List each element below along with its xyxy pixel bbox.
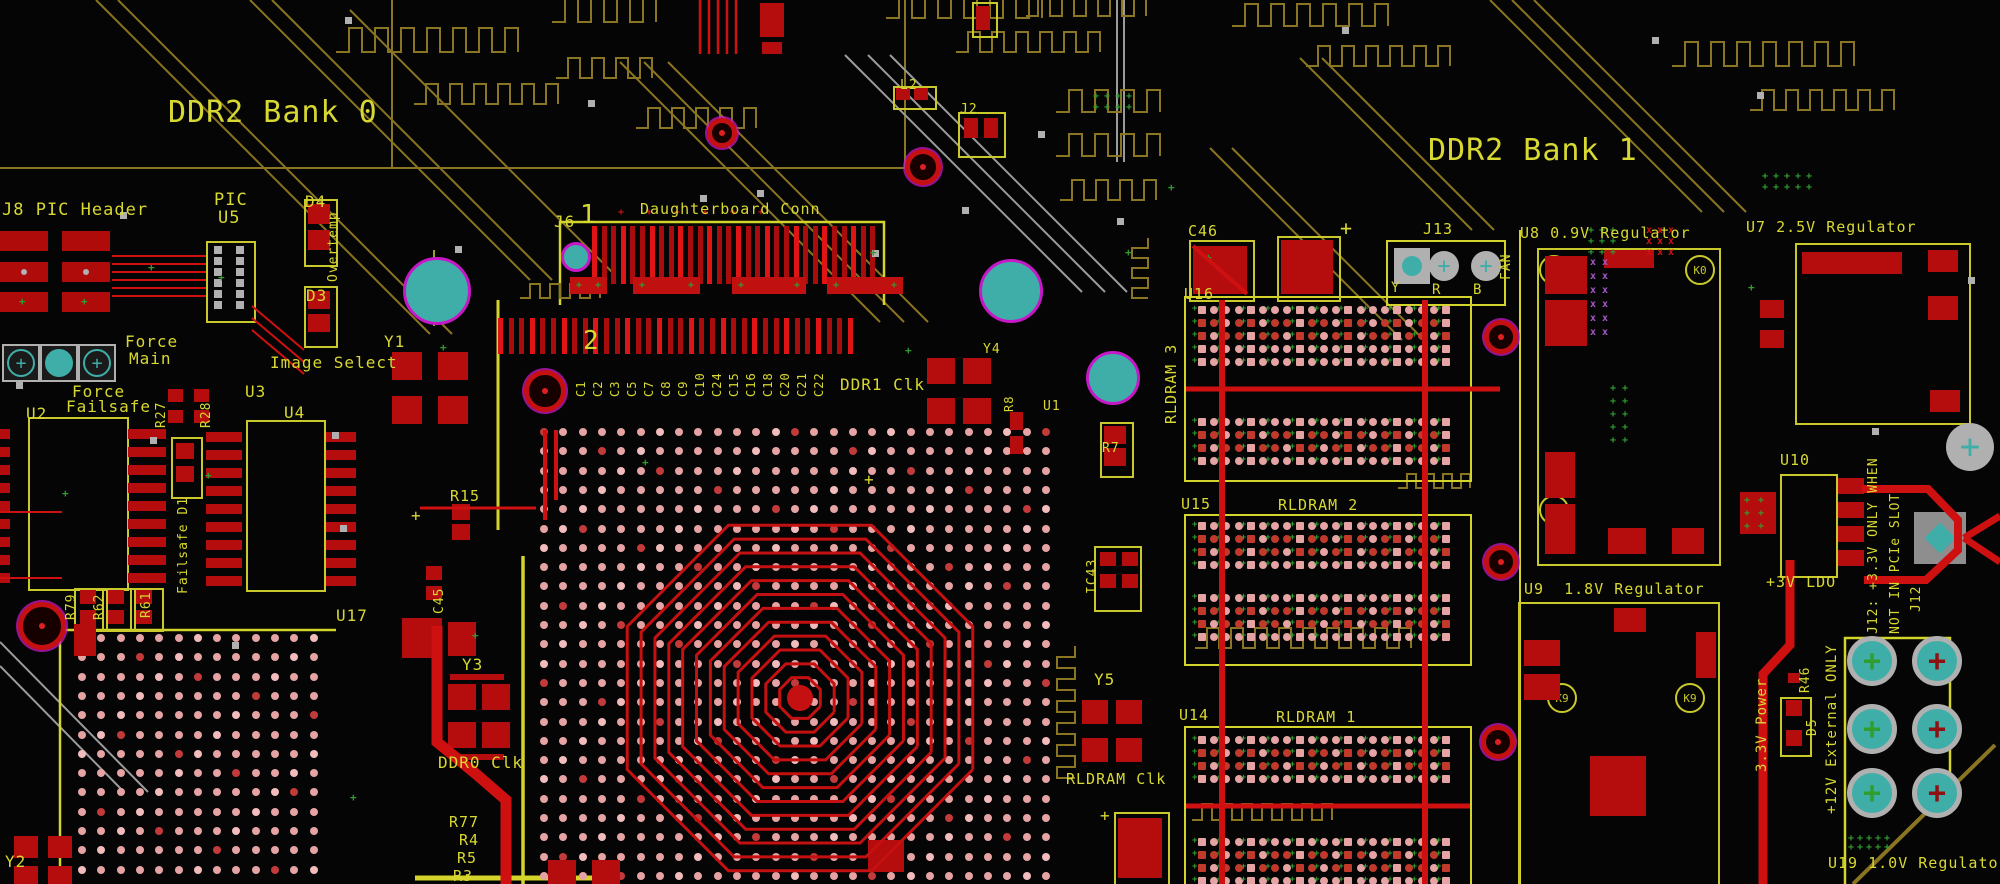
- silk-label: +: [864, 472, 875, 488]
- silk-label: RLDRAM 3: [1164, 344, 1179, 424]
- silk-label: PIC: [214, 192, 248, 209]
- silk-label: J2: [960, 103, 978, 116]
- silk-label-capacitor: C8: [660, 381, 672, 397]
- silk-label: DDR2 Bank 1: [1428, 136, 1638, 166]
- silk-label: Y5: [1094, 672, 1115, 688]
- silk-label: R: [1432, 283, 1441, 297]
- silk-label-capacitor: C7: [643, 381, 655, 397]
- silk-label: +: [1340, 218, 1353, 238]
- silk-label: U5: [218, 210, 240, 227]
- silk-label-capacitor: C15: [728, 372, 740, 397]
- silk-label: Force: [125, 334, 178, 350]
- silk-label: Y4: [983, 343, 1001, 356]
- silk-label: R4: [459, 833, 479, 848]
- silk-label: U19 1.0V Regulator: [1828, 856, 2000, 871]
- silk-label: +: [1100, 808, 1111, 824]
- silk-label-capacitor: C5: [626, 381, 638, 397]
- silk-label: FAN: [1500, 254, 1513, 280]
- silk-label: U7 2.5V Regulator: [1746, 220, 1917, 235]
- silk-label: U14: [1179, 708, 1209, 723]
- silk-label: R27: [155, 402, 168, 428]
- silk-label: R8: [1003, 396, 1015, 412]
- silk-label: B: [1473, 283, 1482, 297]
- silk-label: R62: [93, 594, 106, 620]
- silk-label: DDR2 Bank 0: [168, 98, 378, 128]
- silk-label: D5: [1806, 718, 1819, 736]
- silk-label: RLDRAM 2: [1278, 498, 1358, 513]
- silk-label: J12: [1910, 586, 1923, 612]
- silk-label: RLDRAM Clk: [1066, 772, 1166, 787]
- silk-label: C46: [1188, 224, 1218, 239]
- silk-label-capacitor: C18: [762, 372, 774, 397]
- silk-label: Y3: [462, 657, 483, 673]
- silk-label: C45: [433, 588, 446, 614]
- silk-label: U15: [1181, 497, 1211, 512]
- silk-label: U9 1.8V Regulator: [1524, 582, 1705, 597]
- silk-label: U8 0.9V Regulator: [1520, 226, 1691, 241]
- silk-label: DDR1 Clk: [840, 377, 925, 393]
- silk-label: D3: [306, 288, 327, 304]
- silk-label: 2: [583, 328, 600, 354]
- silk-label-capacitor: C21: [796, 372, 808, 397]
- silk-label: R61: [140, 592, 153, 618]
- silk-label-capacitor: C2: [592, 381, 604, 397]
- silk-label: RLDRAM 1: [1276, 710, 1356, 725]
- silk-label-capacitor: C24: [711, 372, 723, 397]
- silk-label: Daughterboard Conn: [640, 202, 821, 217]
- pcb-canvas[interactable]: ++++++++++++++++++++++++++++++++++++++++…: [0, 0, 2000, 884]
- silk-label: U2: [26, 406, 47, 422]
- silk-label: U16: [1184, 287, 1214, 302]
- silk-label: J8 PIC Header: [2, 202, 148, 219]
- silk-label: R7: [1102, 442, 1120, 455]
- silk-label-capacitor: C22: [813, 372, 825, 397]
- silk-label: Y1: [384, 334, 405, 350]
- silk-label: J12: +3.3V ONLY WHEN: [1867, 457, 1880, 634]
- silk-label-capacitor: C10: [694, 372, 706, 397]
- silk-label: U10: [1780, 453, 1810, 468]
- silk-label: Y2: [5, 854, 26, 870]
- silk-label-capacitor: C20: [779, 372, 791, 397]
- silk-label: Failsafe: [66, 399, 151, 415]
- silk-label: U3: [245, 384, 266, 400]
- silk-label: R15: [450, 489, 480, 504]
- silk-label: R77: [449, 815, 479, 830]
- silk-label: DDR0 Clk: [438, 755, 523, 771]
- silk-label: Overtemp: [327, 211, 340, 282]
- silk-label: Image Select: [270, 355, 398, 371]
- silk-label: Failsafe D1: [177, 497, 190, 594]
- silk-label: +3V LDO: [1766, 575, 1836, 590]
- silk-label: J6: [554, 214, 575, 230]
- silk-label: R46: [1799, 667, 1812, 693]
- silk-label-capacitor: C3: [609, 381, 621, 397]
- silk-label: U17: [336, 608, 368, 624]
- silk-label: J13: [1423, 222, 1453, 237]
- silk-label: Main: [129, 351, 172, 367]
- silk-label: R28: [200, 402, 213, 428]
- silk-label: +12V External ONLY: [1825, 644, 1839, 814]
- silk-label: NOT IN PCIe SLOT: [1889, 493, 1902, 634]
- silk-label: 3.3V Power: [1755, 678, 1769, 772]
- silk-label: L2: [900, 79, 918, 92]
- silk-label: 1: [580, 202, 597, 228]
- silk-label: R3: [453, 869, 473, 884]
- silk-label: R5: [457, 851, 477, 866]
- silk-label: U4: [284, 405, 305, 421]
- silk-label: R79: [65, 594, 78, 620]
- silk-label-capacitor: C16: [745, 372, 757, 397]
- silk-label-capacitor: C1: [575, 381, 587, 397]
- silk-label-capacitor: C9: [677, 381, 689, 397]
- silk-label: +: [411, 508, 422, 524]
- silk-label: U1: [1043, 400, 1061, 413]
- silkscreen-layer: DDR2 Bank 0DDR2 Bank 1J8 PIC HeaderPICU5…: [0, 0, 2000, 884]
- silk-label: IC43: [1086, 559, 1099, 594]
- silk-label: Y: [1391, 281, 1400, 295]
- silk-label: D4: [305, 194, 326, 210]
